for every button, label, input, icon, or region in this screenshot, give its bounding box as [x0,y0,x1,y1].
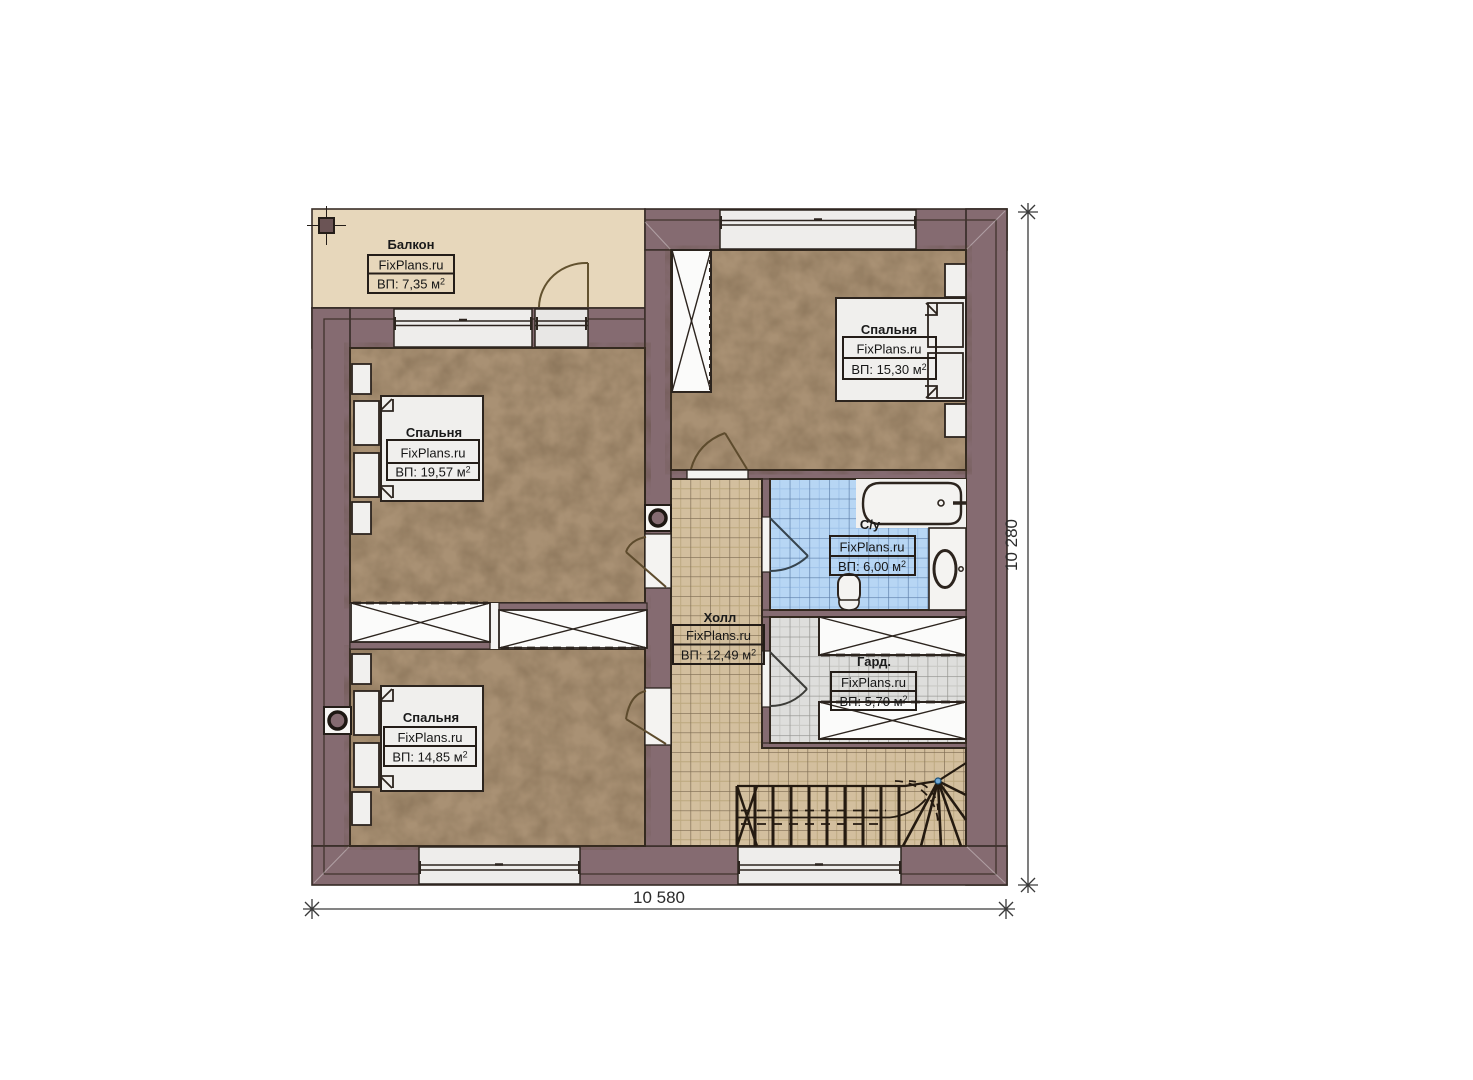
svg-text:ВП: 12,49 м2: ВП: 12,49 м2 [681,648,756,663]
svg-text:ВП: 6,00 м2: ВП: 6,00 м2 [838,559,906,574]
svg-text:ВП: 19,57 м2: ВП: 19,57 м2 [395,465,470,480]
svg-text:10 580: 10 580 [633,888,685,907]
svg-text:Гард.: Гард. [857,654,891,669]
svg-text:FixPlans.ru: FixPlans.ru [686,628,751,643]
svg-text:Балкон: Балкон [388,237,435,252]
svg-text:FixPlans.ru: FixPlans.ru [378,258,443,273]
svg-text:ВП: 7,35 м2: ВП: 7,35 м2 [377,277,445,292]
svg-text:Холл: Холл [704,610,737,625]
svg-text:FixPlans.ru: FixPlans.ru [839,540,904,555]
svg-text:FixPlans.ru: FixPlans.ru [400,446,465,461]
svg-text:ВП: 15,30 м2: ВП: 15,30 м2 [851,362,926,377]
svg-text:FixPlans.ru: FixPlans.ru [397,730,462,745]
svg-text:С/у: С/у [860,517,881,532]
svg-text:Спальня: Спальня [403,710,459,725]
svg-text:ВП: 14,85 м2: ВП: 14,85 м2 [392,750,467,765]
svg-text:10 280: 10 280 [1002,519,1021,571]
svg-text:ВП: 5,70 м2: ВП: 5,70 м2 [839,694,907,709]
svg-text:FixPlans.ru: FixPlans.ru [841,675,906,690]
svg-text:Спальня: Спальня [406,425,462,440]
svg-text:Спальня: Спальня [861,322,917,337]
svg-text:FixPlans.ru: FixPlans.ru [856,342,921,357]
